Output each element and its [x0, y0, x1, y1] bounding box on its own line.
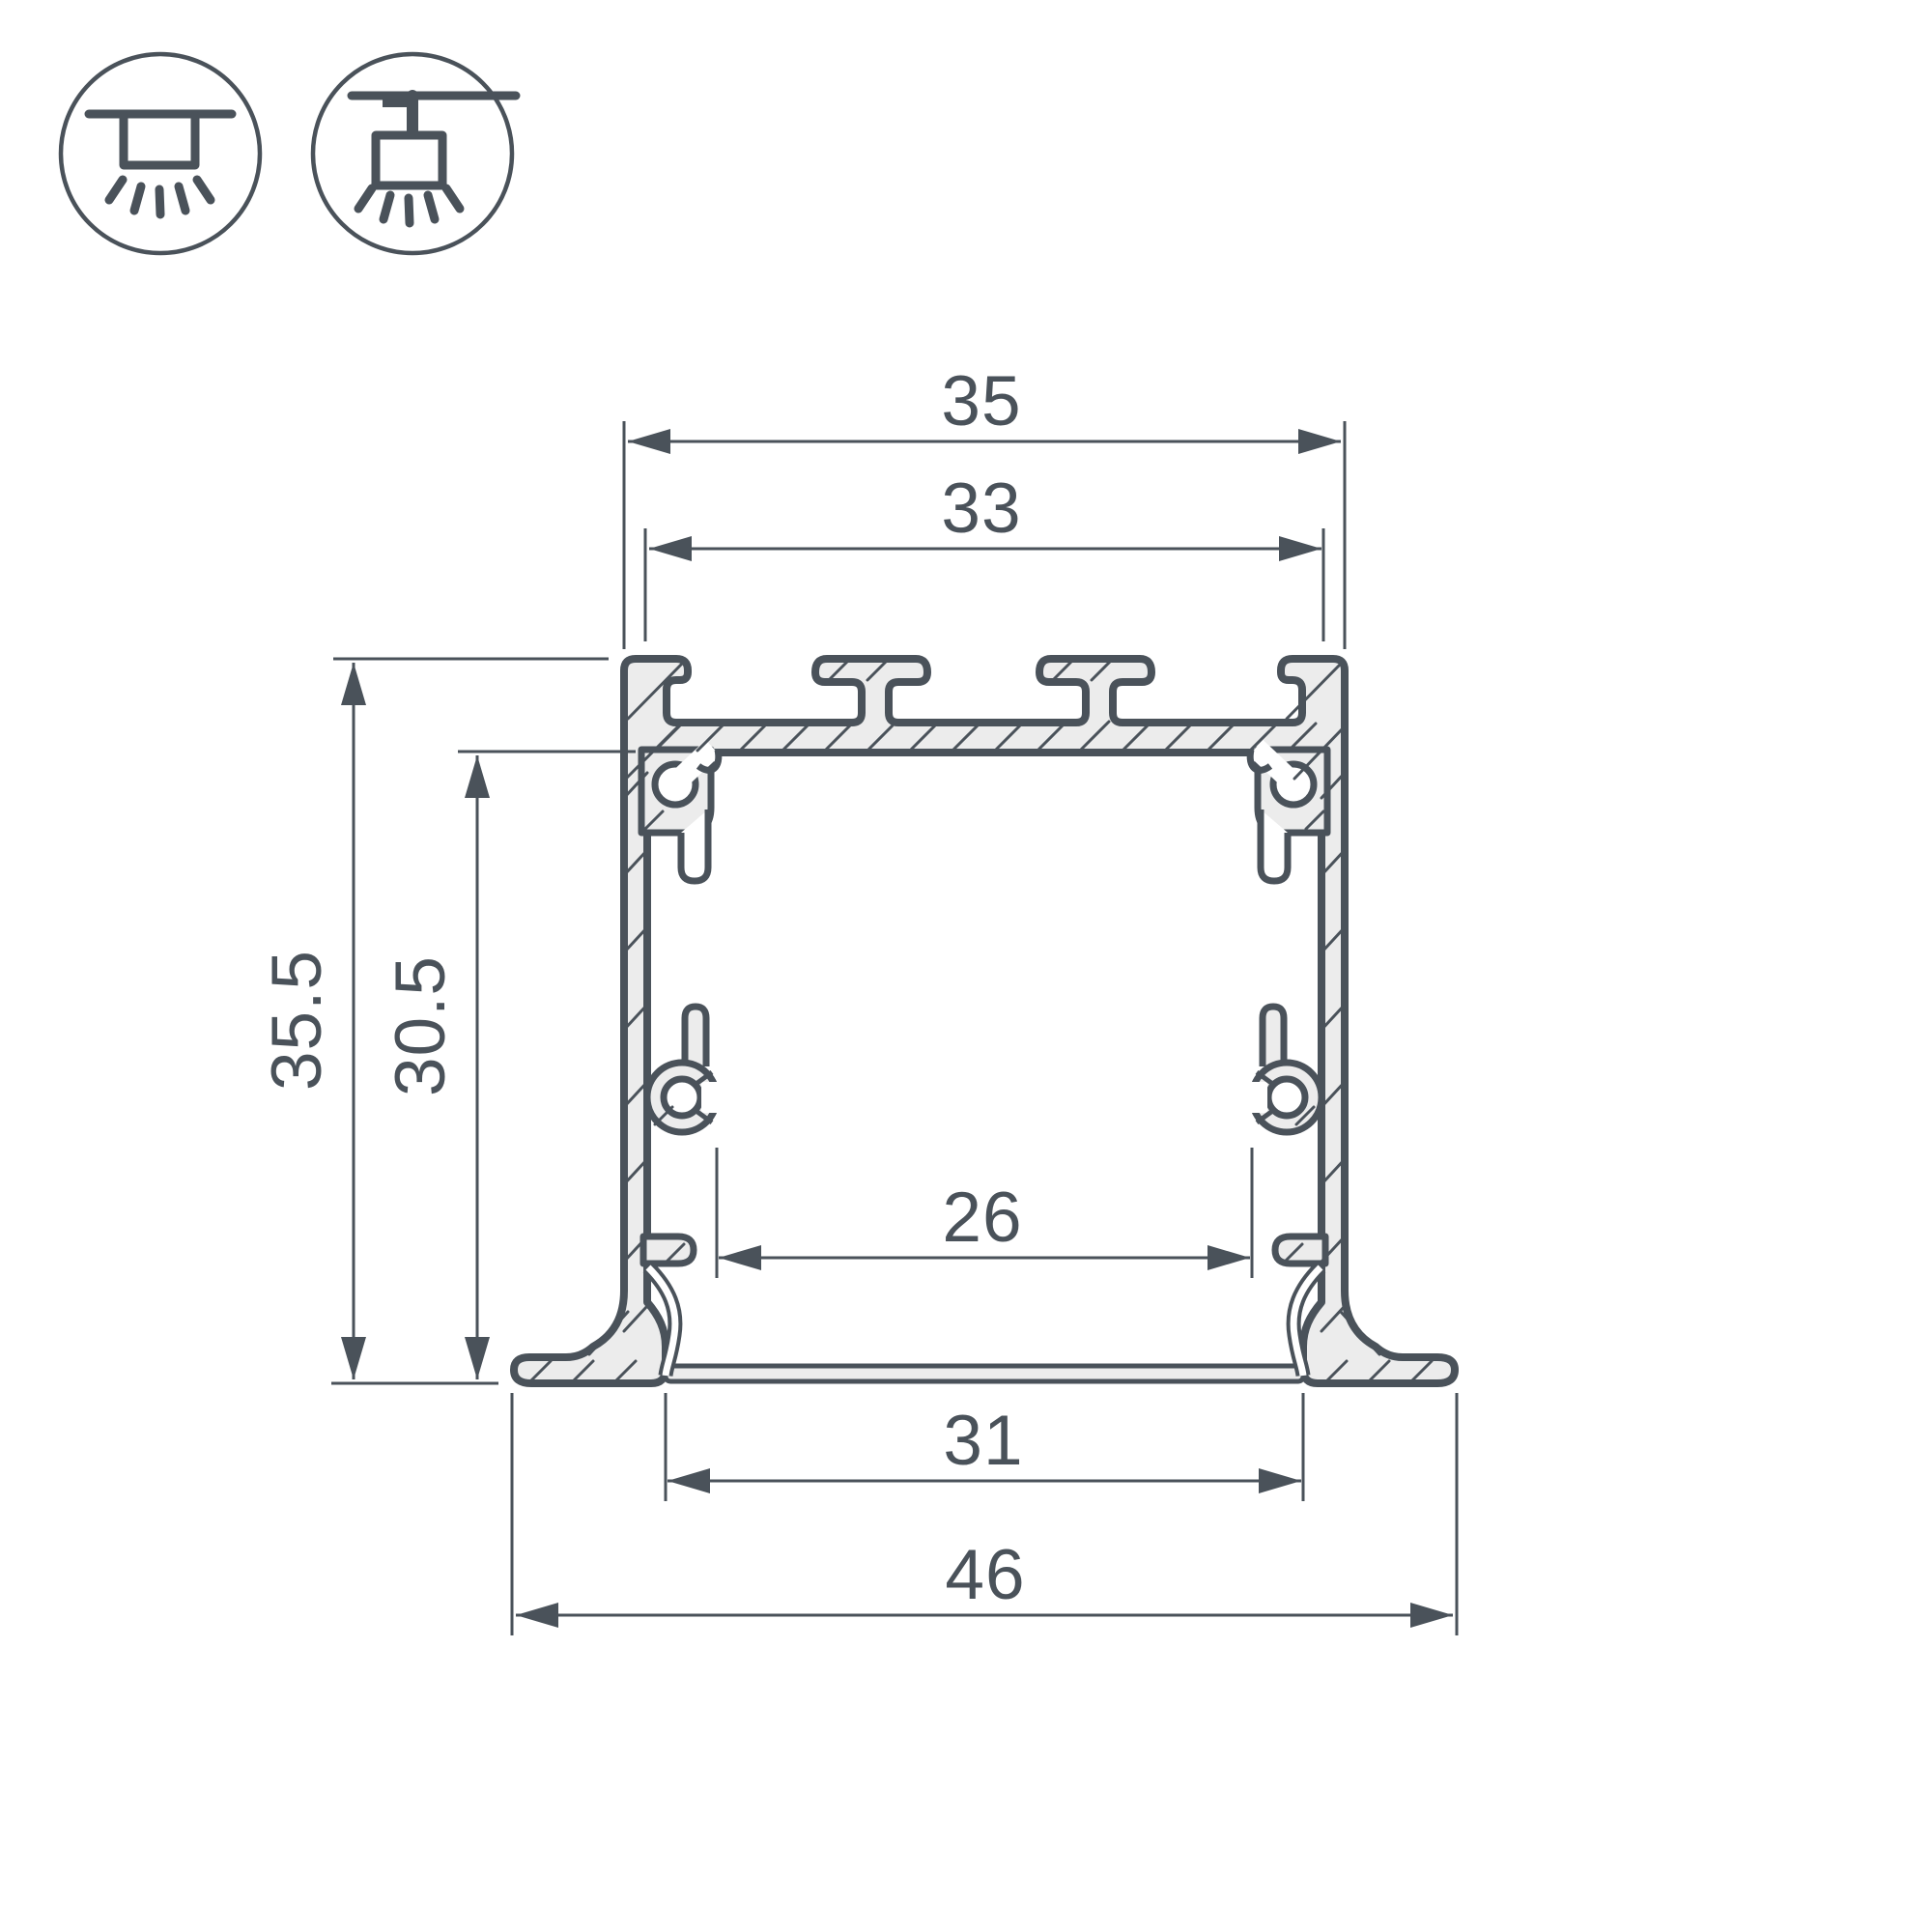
dim-label-35-5: 35.5 [258, 950, 336, 1091]
arrowhead-left [719, 1245, 761, 1270]
dim-label-35: 35 [941, 362, 1021, 440]
bottom-leaf [666, 1366, 1303, 1381]
arrowhead-top [465, 755, 490, 798]
light-rays [358, 188, 460, 223]
recessed-mount-icon [61, 54, 260, 253]
luminaire-box [376, 135, 442, 185]
dim-label-26: 26 [942, 1179, 1022, 1257]
left-wall-details [641, 748, 728, 1376]
ceiling-notch [383, 96, 410, 107]
drawing-canvas: 35 33 35.5 30.5 26 31 [0, 0, 1932, 1932]
arrowhead-top [341, 663, 366, 705]
dim-label-46: 46 [945, 1536, 1025, 1614]
arrowhead-left [668, 1468, 710, 1493]
dim-inner-height: 30.5 [382, 752, 636, 1379]
dim-inner-clear-width: 26 [717, 1148, 1252, 1278]
arrowhead-right [1279, 536, 1321, 561]
arrowhead-bottom [341, 1337, 366, 1379]
arrowhead-right [1298, 429, 1341, 454]
dim-label-30-5: 30.5 [382, 955, 460, 1096]
dim-base-inner-width: 31 [666, 1393, 1303, 1501]
icon-circle [61, 54, 260, 253]
arrowhead-bottom [465, 1337, 490, 1379]
arrowhead-left [516, 1603, 558, 1628]
arrowhead-right [1410, 1603, 1453, 1628]
recessed-box [124, 116, 195, 165]
dim-top-inner-width: 33 [645, 469, 1323, 641]
dim-label-33: 33 [941, 469, 1021, 548]
arrowhead-right [1207, 1245, 1250, 1270]
surface-mount-icon [313, 54, 516, 253]
light-rays [109, 180, 211, 214]
arrowhead-left [628, 429, 670, 454]
arrowhead-right [1259, 1468, 1301, 1493]
right-wall-details [1240, 748, 1327, 1376]
arrowhead-left [649, 536, 692, 561]
dim-label-31: 31 [943, 1402, 1023, 1480]
profile-drawing-svg: 35 33 35.5 30.5 26 31 [0, 0, 1932, 1932]
